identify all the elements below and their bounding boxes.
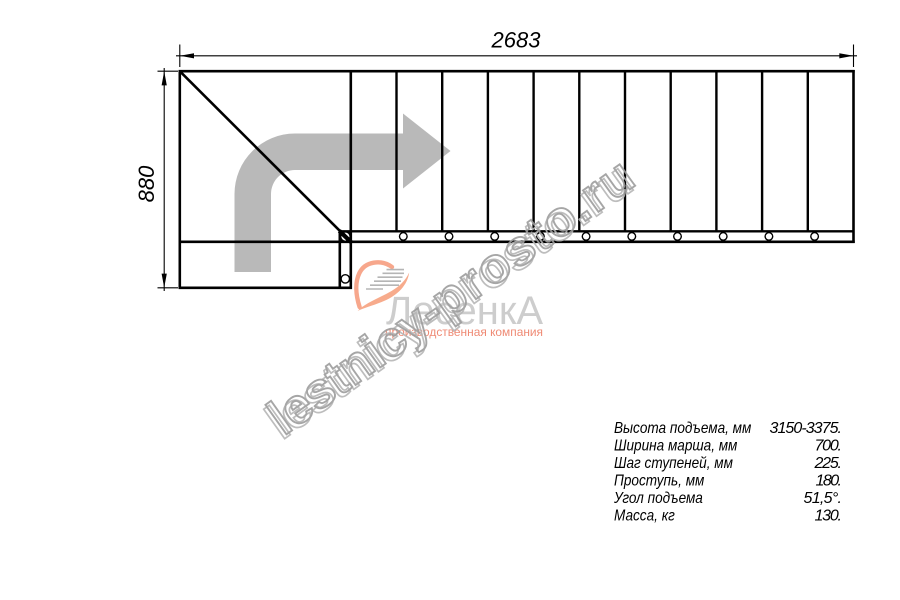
svg-text:700.: 700. bbox=[815, 438, 843, 455]
svg-text:Шаг ступеней, мм: Шаг ступеней, мм bbox=[614, 455, 733, 472]
svg-text:2683: 2683 bbox=[491, 28, 542, 53]
svg-text:225.: 225. bbox=[814, 455, 843, 472]
svg-text:180.: 180. bbox=[816, 473, 843, 490]
svg-text:Проступь, мм: Проступь, мм bbox=[614, 473, 704, 490]
svg-text:130.: 130. bbox=[815, 508, 843, 525]
svg-text:51,5°.: 51,5°. bbox=[804, 490, 843, 507]
svg-text:880: 880 bbox=[134, 165, 159, 202]
svg-text:Ширина марша, мм: Ширина марша, мм bbox=[614, 438, 737, 455]
svg-text:3150-3375.: 3150-3375. bbox=[770, 420, 843, 437]
svg-text:Угол подъема: Угол подъема bbox=[613, 490, 703, 507]
svg-text:Масса, кг: Масса, кг bbox=[614, 508, 675, 525]
svg-text:Высота подъема, мм: Высота подъема, мм bbox=[614, 420, 751, 437]
svg-text:lestnicy-: lestnicy- bbox=[258, 283, 454, 445]
